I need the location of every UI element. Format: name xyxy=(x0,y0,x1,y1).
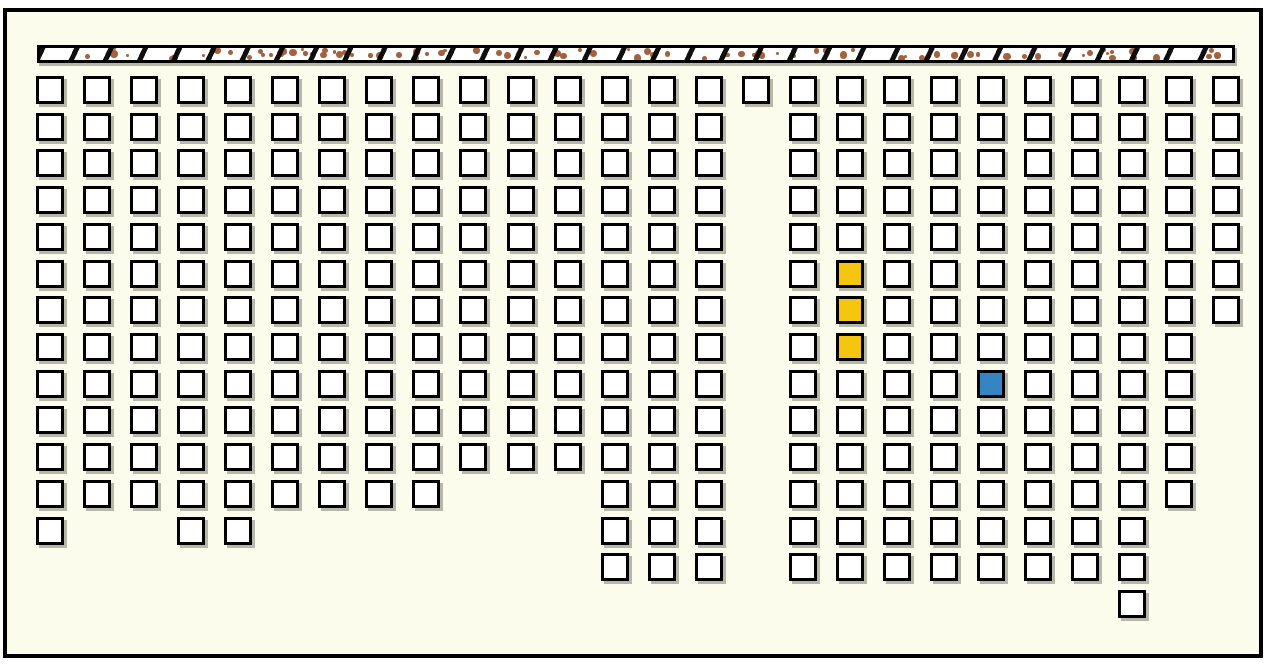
grid-cell[interactable] xyxy=(554,260,582,288)
grid-cell[interactable] xyxy=(1212,149,1240,177)
grid-cell[interactable] xyxy=(883,223,911,251)
grid-cell[interactable] xyxy=(789,517,817,545)
grid-cell[interactable] xyxy=(1165,76,1193,104)
grid-cell[interactable] xyxy=(695,553,723,581)
highlighted-grid-cell[interactable] xyxy=(836,333,864,361)
grid-cell[interactable] xyxy=(836,113,864,141)
grid-cell[interactable] xyxy=(1212,296,1240,324)
grid-cell[interactable] xyxy=(695,113,723,141)
grid-cell[interactable] xyxy=(130,406,158,434)
grid-cell[interactable] xyxy=(601,443,629,471)
grid-cell[interactable] xyxy=(601,149,629,177)
grid-cell[interactable] xyxy=(177,186,205,214)
grid-cell[interactable] xyxy=(130,149,158,177)
grid-cell[interactable] xyxy=(83,149,111,177)
grid-cell[interactable] xyxy=(36,406,64,434)
grid-cell[interactable] xyxy=(883,296,911,324)
grid-cell[interactable] xyxy=(36,517,64,545)
grid-cell[interactable] xyxy=(412,333,440,361)
highlighted-grid-cell[interactable] xyxy=(836,296,864,324)
grid-cell[interactable] xyxy=(1024,186,1052,214)
grid-cell[interactable] xyxy=(224,370,252,398)
grid-cell[interactable] xyxy=(648,370,676,398)
grid-cell[interactable] xyxy=(1071,480,1099,508)
grid-cell[interactable] xyxy=(883,370,911,398)
grid-cell[interactable] xyxy=(459,333,487,361)
grid-cell[interactable] xyxy=(271,333,299,361)
grid-cell[interactable] xyxy=(1071,296,1099,324)
grid-cell[interactable] xyxy=(1118,590,1146,618)
grid-cell[interactable] xyxy=(789,186,817,214)
grid-cell[interactable] xyxy=(1118,443,1146,471)
grid-cell[interactable] xyxy=(271,370,299,398)
grid-cell[interactable] xyxy=(836,370,864,398)
grid-cell[interactable] xyxy=(318,406,346,434)
grid-cell[interactable] xyxy=(930,333,958,361)
grid-cell[interactable] xyxy=(789,480,817,508)
grid-cell[interactable] xyxy=(789,333,817,361)
grid-cell[interactable] xyxy=(83,260,111,288)
grid-cell[interactable] xyxy=(1118,149,1146,177)
grid-cell[interactable] xyxy=(1024,260,1052,288)
grid-cell[interactable] xyxy=(318,443,346,471)
grid-cell[interactable] xyxy=(836,149,864,177)
grid-cell[interactable] xyxy=(36,370,64,398)
grid-cell[interactable] xyxy=(318,296,346,324)
grid-cell[interactable] xyxy=(883,76,911,104)
grid-cell[interactable] xyxy=(271,480,299,508)
grid-cell[interactable] xyxy=(883,186,911,214)
grid-cell[interactable] xyxy=(365,113,393,141)
grid-cell[interactable] xyxy=(930,260,958,288)
grid-cell[interactable] xyxy=(412,406,440,434)
grid-cell[interactable] xyxy=(601,517,629,545)
grid-cell[interactable] xyxy=(1118,223,1146,251)
grid-cell[interactable] xyxy=(789,443,817,471)
grid-cell[interactable] xyxy=(36,260,64,288)
grid-cell[interactable] xyxy=(695,333,723,361)
grid-cell[interactable] xyxy=(1118,260,1146,288)
grid-cell[interactable] xyxy=(601,296,629,324)
grid-cell[interactable] xyxy=(224,260,252,288)
grid-cell[interactable] xyxy=(1118,186,1146,214)
grid-cell[interactable] xyxy=(695,149,723,177)
grid-cell[interactable] xyxy=(836,553,864,581)
highlighted-grid-cell[interactable] xyxy=(836,260,864,288)
grid-cell[interactable] xyxy=(177,296,205,324)
grid-cell[interactable] xyxy=(412,76,440,104)
grid-cell[interactable] xyxy=(977,406,1005,434)
grid-cell[interactable] xyxy=(36,296,64,324)
grid-cell[interactable] xyxy=(930,149,958,177)
grid-cell[interactable] xyxy=(648,186,676,214)
grid-cell[interactable] xyxy=(601,370,629,398)
grid-cell[interactable] xyxy=(130,186,158,214)
grid-cell[interactable] xyxy=(789,113,817,141)
grid-cell[interactable] xyxy=(224,296,252,324)
grid-cell[interactable] xyxy=(601,223,629,251)
grid-cell[interactable] xyxy=(224,333,252,361)
grid-cell[interactable] xyxy=(177,370,205,398)
grid-cell[interactable] xyxy=(412,186,440,214)
grid-cell[interactable] xyxy=(1118,76,1146,104)
grid-cell[interactable] xyxy=(318,370,346,398)
grid-cell[interactable] xyxy=(1071,76,1099,104)
grid-cell[interactable] xyxy=(601,480,629,508)
grid-cell[interactable] xyxy=(1071,553,1099,581)
grid-cell[interactable] xyxy=(83,333,111,361)
grid-cell[interactable] xyxy=(1024,296,1052,324)
grid-cell[interactable] xyxy=(177,333,205,361)
grid-cell[interactable] xyxy=(36,443,64,471)
grid-cell[interactable] xyxy=(695,260,723,288)
grid-cell[interactable] xyxy=(554,223,582,251)
grid-cell[interactable] xyxy=(224,406,252,434)
grid-cell[interactable] xyxy=(930,223,958,251)
grid-cell[interactable] xyxy=(1165,186,1193,214)
grid-cell[interactable] xyxy=(412,296,440,324)
grid-cell[interactable] xyxy=(318,113,346,141)
grid-cell[interactable] xyxy=(224,223,252,251)
grid-cell[interactable] xyxy=(1024,333,1052,361)
grid-cell[interactable] xyxy=(883,443,911,471)
grid-cell[interactable] xyxy=(507,260,535,288)
grid-cell[interactable] xyxy=(271,223,299,251)
grid-cell[interactable] xyxy=(318,260,346,288)
grid-cell[interactable] xyxy=(836,223,864,251)
grid-cell[interactable] xyxy=(177,443,205,471)
grid-cell[interactable] xyxy=(1118,553,1146,581)
grid-cell[interactable] xyxy=(930,443,958,471)
grid-cell[interactable] xyxy=(695,480,723,508)
grid-cell[interactable] xyxy=(459,370,487,398)
grid-cell[interactable] xyxy=(1071,223,1099,251)
grid-cell[interactable] xyxy=(1024,76,1052,104)
grid-cell[interactable] xyxy=(130,480,158,508)
grid-cell[interactable] xyxy=(318,76,346,104)
grid-cell[interactable] xyxy=(1071,517,1099,545)
grid-cell[interactable] xyxy=(601,113,629,141)
grid-cell[interactable] xyxy=(1071,113,1099,141)
grid-cell[interactable] xyxy=(1118,333,1146,361)
grid-cell[interactable] xyxy=(1165,149,1193,177)
grid-cell[interactable] xyxy=(224,517,252,545)
grid-cell[interactable] xyxy=(365,260,393,288)
grid-cell[interactable] xyxy=(1165,480,1193,508)
grid-cell[interactable] xyxy=(365,223,393,251)
grid-cell[interactable] xyxy=(742,76,770,104)
grid-cell[interactable] xyxy=(789,149,817,177)
grid-cell[interactable] xyxy=(836,480,864,508)
highlighted-grid-cell[interactable] xyxy=(977,370,1005,398)
grid-cell[interactable] xyxy=(1165,260,1193,288)
grid-cell[interactable] xyxy=(883,149,911,177)
grid-cell[interactable] xyxy=(83,406,111,434)
grid-cell[interactable] xyxy=(412,443,440,471)
grid-cell[interactable] xyxy=(883,553,911,581)
grid-cell[interactable] xyxy=(224,186,252,214)
grid-cell[interactable] xyxy=(507,296,535,324)
grid-cell[interactable] xyxy=(36,186,64,214)
grid-cell[interactable] xyxy=(36,333,64,361)
grid-cell[interactable] xyxy=(648,406,676,434)
grid-cell[interactable] xyxy=(224,443,252,471)
grid-cell[interactable] xyxy=(1118,113,1146,141)
grid-cell[interactable] xyxy=(36,113,64,141)
grid-cell[interactable] xyxy=(36,480,64,508)
grid-cell[interactable] xyxy=(1071,260,1099,288)
grid-cell[interactable] xyxy=(412,149,440,177)
grid-cell[interactable] xyxy=(177,223,205,251)
grid-cell[interactable] xyxy=(601,260,629,288)
grid-cell[interactable] xyxy=(412,480,440,508)
grid-cell[interactable] xyxy=(930,517,958,545)
grid-cell[interactable] xyxy=(365,480,393,508)
grid-cell[interactable] xyxy=(883,260,911,288)
grid-cell[interactable] xyxy=(507,149,535,177)
grid-cell[interactable] xyxy=(554,113,582,141)
grid-cell[interactable] xyxy=(83,113,111,141)
grid-cell[interactable] xyxy=(507,370,535,398)
grid-cell[interactable] xyxy=(507,443,535,471)
grid-cell[interactable] xyxy=(836,443,864,471)
grid-cell[interactable] xyxy=(271,260,299,288)
grid-cell[interactable] xyxy=(271,113,299,141)
grid-cell[interactable] xyxy=(507,333,535,361)
grid-cell[interactable] xyxy=(930,406,958,434)
grid-cell[interactable] xyxy=(177,260,205,288)
grid-cell[interactable] xyxy=(1165,223,1193,251)
grid-cell[interactable] xyxy=(789,296,817,324)
grid-cell[interactable] xyxy=(977,260,1005,288)
grid-cell[interactable] xyxy=(130,76,158,104)
grid-cell[interactable] xyxy=(1071,186,1099,214)
grid-cell[interactable] xyxy=(36,149,64,177)
grid-cell[interactable] xyxy=(930,480,958,508)
grid-cell[interactable] xyxy=(1118,370,1146,398)
grid-cell[interactable] xyxy=(130,260,158,288)
grid-cell[interactable] xyxy=(554,406,582,434)
grid-cell[interactable] xyxy=(601,406,629,434)
grid-cell[interactable] xyxy=(318,333,346,361)
grid-cell[interactable] xyxy=(271,443,299,471)
grid-cell[interactable] xyxy=(930,186,958,214)
grid-cell[interactable] xyxy=(695,517,723,545)
grid-cell[interactable] xyxy=(83,296,111,324)
grid-cell[interactable] xyxy=(507,406,535,434)
grid-cell[interactable] xyxy=(977,149,1005,177)
grid-cell[interactable] xyxy=(1024,517,1052,545)
grid-cell[interactable] xyxy=(412,260,440,288)
grid-cell[interactable] xyxy=(554,296,582,324)
grid-cell[interactable] xyxy=(883,333,911,361)
grid-cell[interactable] xyxy=(459,296,487,324)
grid-cell[interactable] xyxy=(459,113,487,141)
grid-cell[interactable] xyxy=(930,370,958,398)
grid-cell[interactable] xyxy=(648,260,676,288)
grid-cell[interactable] xyxy=(1024,370,1052,398)
grid-cell[interactable] xyxy=(412,223,440,251)
grid-cell[interactable] xyxy=(789,76,817,104)
grid-cell[interactable] xyxy=(977,113,1005,141)
grid-cell[interactable] xyxy=(1071,406,1099,434)
grid-cell[interactable] xyxy=(507,113,535,141)
grid-cell[interactable] xyxy=(224,113,252,141)
grid-cell[interactable] xyxy=(177,517,205,545)
grid-cell[interactable] xyxy=(977,223,1005,251)
grid-cell[interactable] xyxy=(412,370,440,398)
grid-cell[interactable] xyxy=(836,406,864,434)
grid-cell[interactable] xyxy=(1071,333,1099,361)
grid-cell[interactable] xyxy=(977,296,1005,324)
grid-cell[interactable] xyxy=(365,333,393,361)
grid-cell[interactable] xyxy=(1024,149,1052,177)
grid-cell[interactable] xyxy=(977,76,1005,104)
grid-cell[interactable] xyxy=(1212,76,1240,104)
grid-cell[interactable] xyxy=(365,370,393,398)
grid-cell[interactable] xyxy=(1165,296,1193,324)
grid-cell[interactable] xyxy=(1118,296,1146,324)
grid-cell[interactable] xyxy=(177,406,205,434)
grid-cell[interactable] xyxy=(789,406,817,434)
grid-cell[interactable] xyxy=(318,186,346,214)
grid-cell[interactable] xyxy=(130,223,158,251)
grid-cell[interactable] xyxy=(459,76,487,104)
grid-cell[interactable] xyxy=(1165,113,1193,141)
grid-cell[interactable] xyxy=(695,186,723,214)
grid-cell[interactable] xyxy=(695,406,723,434)
grid-cell[interactable] xyxy=(601,76,629,104)
grid-cell[interactable] xyxy=(224,149,252,177)
grid-cell[interactable] xyxy=(789,223,817,251)
grid-cell[interactable] xyxy=(412,113,440,141)
grid-cell[interactable] xyxy=(318,223,346,251)
grid-cell[interactable] xyxy=(271,296,299,324)
grid-cell[interactable] xyxy=(977,553,1005,581)
grid-cell[interactable] xyxy=(554,76,582,104)
grid-cell[interactable] xyxy=(365,296,393,324)
grid-cell[interactable] xyxy=(554,149,582,177)
grid-cell[interactable] xyxy=(930,113,958,141)
grid-cell[interactable] xyxy=(1118,480,1146,508)
grid-cell[interactable] xyxy=(1024,406,1052,434)
grid-cell[interactable] xyxy=(1212,186,1240,214)
grid-cell[interactable] xyxy=(1165,406,1193,434)
grid-cell[interactable] xyxy=(1024,443,1052,471)
grid-cell[interactable] xyxy=(36,76,64,104)
grid-cell[interactable] xyxy=(459,443,487,471)
grid-cell[interactable] xyxy=(83,443,111,471)
grid-cell[interactable] xyxy=(130,370,158,398)
grid-cell[interactable] xyxy=(507,223,535,251)
grid-cell[interactable] xyxy=(789,553,817,581)
grid-cell[interactable] xyxy=(1024,223,1052,251)
grid-cell[interactable] xyxy=(83,223,111,251)
grid-cell[interactable] xyxy=(177,76,205,104)
grid-cell[interactable] xyxy=(177,480,205,508)
grid-cell[interactable] xyxy=(224,76,252,104)
grid-cell[interactable] xyxy=(695,76,723,104)
grid-cell[interactable] xyxy=(507,76,535,104)
grid-cell[interactable] xyxy=(224,480,252,508)
grid-cell[interactable] xyxy=(648,149,676,177)
grid-cell[interactable] xyxy=(271,406,299,434)
grid-cell[interactable] xyxy=(459,186,487,214)
grid-cell[interactable] xyxy=(271,149,299,177)
grid-cell[interactable] xyxy=(977,480,1005,508)
grid-cell[interactable] xyxy=(695,296,723,324)
grid-cell[interactable] xyxy=(836,76,864,104)
grid-cell[interactable] xyxy=(836,186,864,214)
grid-cell[interactable] xyxy=(648,517,676,545)
grid-cell[interactable] xyxy=(36,223,64,251)
grid-cell[interactable] xyxy=(648,223,676,251)
grid-cell[interactable] xyxy=(1212,260,1240,288)
grid-cell[interactable] xyxy=(459,406,487,434)
grid-cell[interactable] xyxy=(648,76,676,104)
grid-cell[interactable] xyxy=(177,113,205,141)
grid-cell[interactable] xyxy=(977,517,1005,545)
grid-cell[interactable] xyxy=(1024,480,1052,508)
grid-cell[interactable] xyxy=(365,149,393,177)
grid-cell[interactable] xyxy=(459,260,487,288)
grid-cell[interactable] xyxy=(648,113,676,141)
grid-cell[interactable] xyxy=(883,113,911,141)
grid-cell[interactable] xyxy=(1165,443,1193,471)
grid-cell[interactable] xyxy=(130,443,158,471)
grid-cell[interactable] xyxy=(930,553,958,581)
grid-cell[interactable] xyxy=(130,333,158,361)
grid-cell[interactable] xyxy=(365,443,393,471)
grid-cell[interactable] xyxy=(130,296,158,324)
grid-cell[interactable] xyxy=(789,260,817,288)
grid-cell[interactable] xyxy=(695,443,723,471)
grid-cell[interactable] xyxy=(789,370,817,398)
grid-cell[interactable] xyxy=(1071,370,1099,398)
grid-cell[interactable] xyxy=(1165,333,1193,361)
grid-cell[interactable] xyxy=(930,296,958,324)
grid-cell[interactable] xyxy=(1212,113,1240,141)
grid-cell[interactable] xyxy=(318,480,346,508)
grid-cell[interactable] xyxy=(883,517,911,545)
grid-cell[interactable] xyxy=(507,186,535,214)
grid-cell[interactable] xyxy=(1118,517,1146,545)
grid-cell[interactable] xyxy=(83,480,111,508)
grid-cell[interactable] xyxy=(365,186,393,214)
grid-cell[interactable] xyxy=(695,370,723,398)
grid-cell[interactable] xyxy=(271,76,299,104)
grid-cell[interactable] xyxy=(601,186,629,214)
grid-cell[interactable] xyxy=(130,113,158,141)
grid-cell[interactable] xyxy=(648,480,676,508)
grid-cell[interactable] xyxy=(1071,149,1099,177)
grid-cell[interactable] xyxy=(554,370,582,398)
grid-cell[interactable] xyxy=(459,149,487,177)
grid-cell[interactable] xyxy=(1024,553,1052,581)
grid-cell[interactable] xyxy=(883,480,911,508)
grid-cell[interactable] xyxy=(365,406,393,434)
grid-cell[interactable] xyxy=(695,223,723,251)
grid-cell[interactable] xyxy=(601,553,629,581)
grid-cell[interactable] xyxy=(459,223,487,251)
grid-cell[interactable] xyxy=(1165,370,1193,398)
grid-cell[interactable] xyxy=(648,553,676,581)
grid-cell[interactable] xyxy=(883,406,911,434)
grid-cell[interactable] xyxy=(318,149,346,177)
grid-cell[interactable] xyxy=(83,186,111,214)
grid-cell[interactable] xyxy=(1118,406,1146,434)
grid-cell[interactable] xyxy=(648,443,676,471)
